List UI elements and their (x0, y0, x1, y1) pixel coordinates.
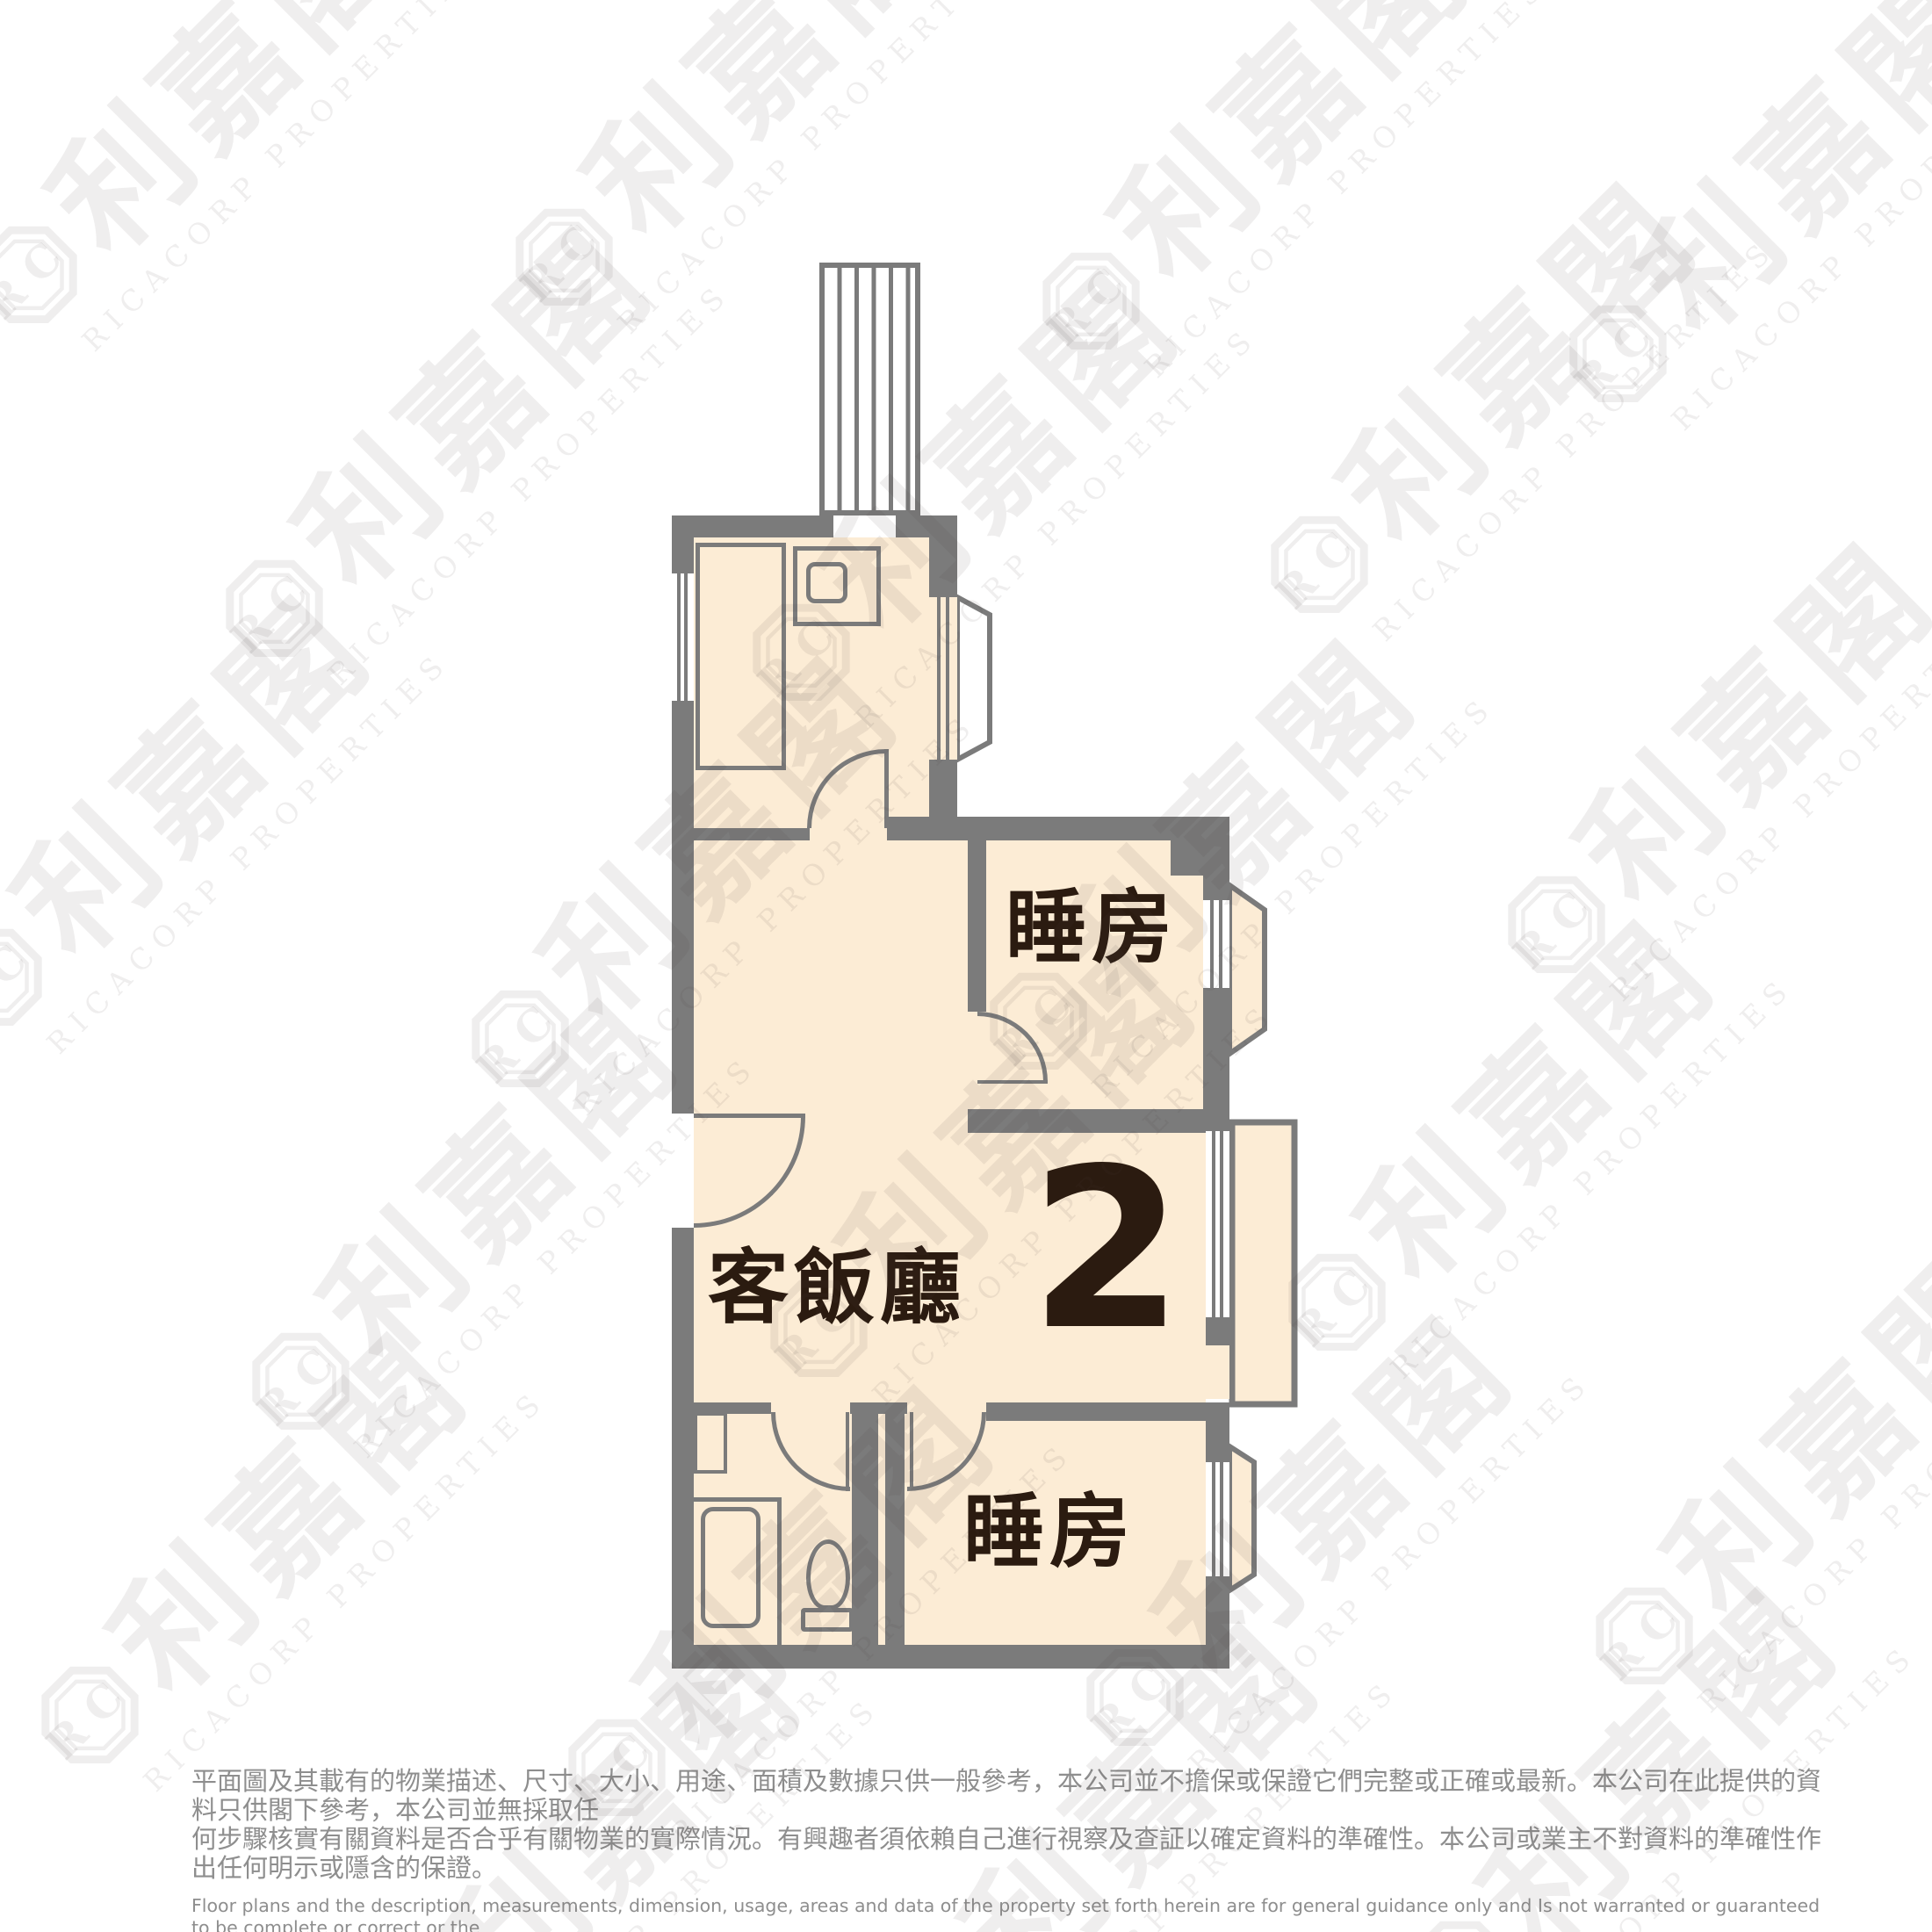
ricacorp-logo-icon: RC (1575, 1567, 1713, 1705)
bedroom-bottom-label: 睡房 (963, 1492, 1135, 1573)
watermark-latin-text: RICACORP PROPERTIES (137, 1381, 554, 1799)
window-mullion (946, 597, 949, 760)
bathtub (701, 1507, 761, 1628)
kitchen-right-window (929, 597, 957, 760)
watermark-logo-text: RC (1038, 248, 1146, 356)
kitchen-door-leaf (884, 749, 889, 828)
wall-kitchen-right-upper (929, 537, 957, 597)
bedroom-bottom-bay-window (1229, 1446, 1254, 1590)
ricacorp-logo-icon: RC (20, 1646, 159, 1784)
wall-bedroom-top-right-a (1203, 876, 1229, 900)
watermark-tile: RC 利嘉閣 RICACORP PROPERTIES (0, 0, 492, 386)
disclaimer: 平面圖及其載有的物業描述、尺寸、大小、用途、面積及數據只供一般參考，本公司並不擔… (191, 1767, 1842, 1932)
living-dining-label: 客飯廳 (708, 1248, 966, 1329)
watermark-cjk-text: 利嘉閣 (1337, 899, 1740, 1301)
watermark-tile: RC 利嘉閣 RICACORP PROPERTIES (0, 544, 457, 1089)
watermark-logo-text: RC (1591, 1582, 1699, 1690)
watermark-latin-text: RICACORP PROPERTIES (40, 644, 458, 1061)
ricacorp-logo-icon: RC (1487, 855, 1626, 994)
watermark-latin-text: RICACORP PROPERTIES (1366, 231, 1784, 648)
watermark-tile: RC 利嘉閣 RICACORP PROPERTIES (1256, 869, 1800, 1414)
window-mullion (1212, 1462, 1215, 1576)
watermark-logo-text: RC (0, 221, 83, 329)
disclaimer-zh-line2: 何步驟核實有關資料是否合乎有關物業的實際情況。有興趣者須依賴自己進行視察及查証以… (191, 1825, 1842, 1883)
wall-bedroom-bottom-right-b (1206, 1576, 1229, 1645)
wall-bottom (672, 1645, 1229, 1669)
kitchen-counter (696, 543, 786, 770)
disclaimer-zh-line1: 平面圖及其載有的物業描述、尺寸、大小、用途、面積及數據只供一般參考，本公司並不擔… (191, 1767, 1842, 1825)
wall-bedroom-bottom-top (986, 1402, 1229, 1421)
ricacorp-logo-icon: RC (0, 205, 98, 344)
living-bay-window (1232, 1122, 1294, 1404)
living-bay-opening (1206, 1345, 1229, 1399)
watermark-cjk-text: 利嘉閣 (29, 0, 431, 274)
watermark-tile: RC 利嘉閣 RICACORP PROPERTIES (1238, 132, 1783, 676)
bathroom-divider-seam (878, 1414, 885, 1645)
watermark-latin-text: RICACORP PROPERTIES (1691, 1302, 1932, 1719)
watermark-logo-text: RC (1284, 1249, 1392, 1357)
watermark-cjk-text: 利嘉閣 (0, 574, 396, 977)
window-mullion (937, 597, 941, 760)
watermark-tile: RC 利嘉閣 RICACORP PROPERTIES (9, 1282, 553, 1827)
window-mullion (1220, 1462, 1223, 1576)
ricacorp-logo-icon: RC (1250, 495, 1388, 634)
toilet-base (801, 1608, 854, 1632)
wall-bathroom-divider-a (852, 1414, 878, 1645)
watermark-tile: RC 利嘉閣 RICACORP PROPERTIES (1563, 1203, 1932, 1748)
watermark-tile: RC 利嘉閣 RICACORP PROPERTIES (193, 176, 738, 720)
floor-plan-page: 睡房 客飯廳 2 睡房 平面圖及其載有的物業描述、尺寸、大小、用途、面積及數據只… (0, 0, 1932, 1932)
wall-kitchen-left-upper (672, 537, 694, 573)
watermark-latin-text: RICACORP PROPERTIES (76, 0, 493, 358)
bedroom-top-window (1203, 900, 1229, 988)
ricacorp-logo-icon: RC (1548, 285, 1687, 423)
watermark-cjk-text: 利嘉閣 (90, 1312, 493, 1714)
watermark-logo-text: RC (37, 1662, 145, 1770)
ricacorp-logo-icon: RC (1267, 1233, 1406, 1372)
bedroom-top-label: 睡房 (1006, 888, 1178, 969)
watermark-logo-text: RC (1503, 871, 1611, 979)
watermark-cjk-text: 利嘉閣 (1618, 0, 1932, 353)
kitchen-bay-window (957, 597, 990, 760)
watermark-tile: RC 利嘉閣 RICACORP PROPERTIES (483, 0, 1027, 369)
entrance-door-leaf (694, 1114, 805, 1118)
wall-living-right-block (1206, 1317, 1229, 1345)
wall-bathroom-left (672, 1414, 694, 1669)
watermark-latin-text: RICACORP PROPERTIES (1138, 0, 1555, 385)
ricacorp-logo-icon: RC (1021, 232, 1160, 371)
wall-bedroom-top-step (1171, 837, 1229, 876)
watermark-tile: RC 利嘉閣 RICACORP PROPERTIES (1475, 492, 1932, 1036)
wall-left-middle (672, 840, 694, 1114)
watermark-latin-text: RICACORP PROPERTIES (1604, 591, 1932, 1008)
watermark-logo-text: RC (1266, 511, 1374, 619)
watermark-cjk-text: 利嘉閣 (1557, 522, 1932, 924)
watermark-cjk-text: 利嘉閣 (1645, 1233, 1932, 1635)
staircase-opening (833, 515, 896, 537)
ricacorp-logo-icon: RC (451, 970, 589, 1108)
watermark-latin-text: RICACORP PROPERTIES (1384, 969, 1801, 1386)
watermark-latin-text: RICACORP PROPERTIES (1182, 1364, 1599, 1781)
watermark-cjk-text: 利嘉閣 (301, 978, 703, 1381)
wall-kitchen-bottom (672, 828, 810, 840)
window-mullion (1210, 900, 1214, 988)
window-mullion (1212, 1131, 1215, 1317)
bedroom-bottom-window (1206, 1462, 1229, 1576)
wall-left-lower (672, 1228, 694, 1402)
wall-door-pillar (850, 1402, 907, 1414)
window-mullion (1220, 1131, 1223, 1317)
watermark-logo-text: RC (1565, 300, 1673, 408)
wall-bathroom-divider-b (885, 1414, 905, 1645)
watermark-tile: RC 利嘉閣 RICACORP PROPERTIES (1010, 0, 1554, 413)
kitchen-left-window (672, 573, 694, 701)
watermark-logo-text: RC (467, 985, 575, 1093)
window-mullion (677, 573, 681, 701)
watermark-cjk-text: 利嘉閣 (565, 0, 967, 256)
wall-kitchen-left-lower (672, 701, 694, 840)
watermark-cjk-text: 利嘉閣 (1320, 162, 1722, 564)
watermark-cjk-text: 利嘉閣 (1092, 0, 1494, 300)
watermark-logo-text: RC (0, 924, 48, 1032)
kitchen-sink (806, 562, 847, 603)
unit-number: 2 (1029, 1140, 1183, 1361)
toilet-bowl (806, 1539, 850, 1610)
ricacorp-logo-icon: RC (494, 188, 633, 327)
watermark-logo-text: RC (221, 555, 329, 663)
wall-kitchen-top (672, 515, 957, 537)
corridor-floor (694, 840, 968, 1133)
watermark-cjk-text: 利嘉閣 (275, 205, 677, 608)
watermark-logo-text: RC (248, 1328, 356, 1436)
bedroom-top-door-leaf (977, 1080, 1048, 1084)
disclaimer-en-line1: Floor plans and the description, measure… (191, 1895, 1842, 1932)
staircase (819, 263, 920, 515)
bedroom-top-bay-window (1229, 885, 1265, 1054)
watermark-tile: RC 利嘉閣 RICACORP PROPERTIES (1537, 0, 1932, 465)
washbasin (694, 1412, 727, 1474)
kitchen-door-gap (810, 828, 887, 840)
window-mullion (684, 573, 688, 701)
watermark-logo-text: RC (511, 204, 619, 312)
bedroom-bottom-door-leaf (910, 1412, 913, 1489)
bathroom-door-leaf (846, 1412, 849, 1491)
living-window (1206, 1131, 1229, 1317)
wall-bedroom-bottom-right-a (1206, 1421, 1229, 1462)
ricacorp-logo-icon: RC (205, 539, 343, 678)
watermark-latin-text: RICACORP PROPERTIES (1665, 20, 1932, 437)
ricacorp-logo-icon: RC (231, 1312, 370, 1451)
window-mullion (1219, 900, 1222, 988)
wall-bedroom-top-left (968, 840, 986, 1012)
ricacorp-logo-icon: RC (0, 908, 63, 1047)
